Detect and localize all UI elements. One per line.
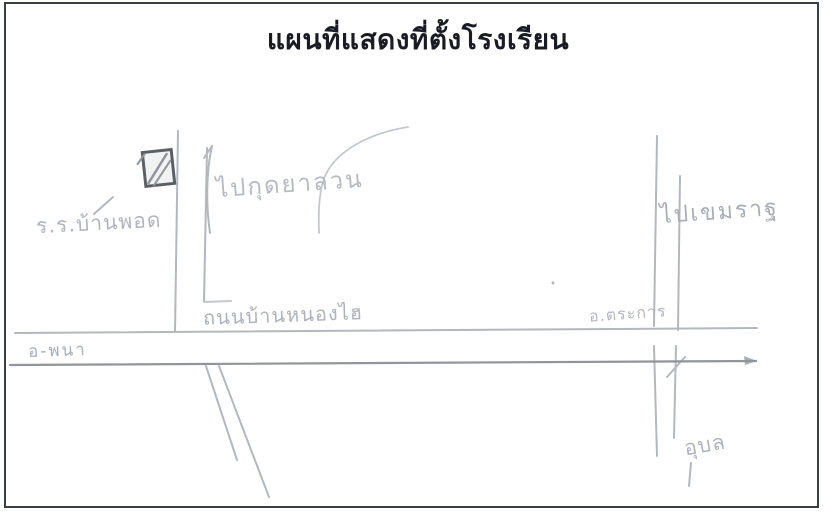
scanned-map-page: แผนที่แสดงที่ตั้งโรงเรียน [0, 0, 836, 530]
main-horizontal-road [10, 328, 757, 365]
road-end-arrowhead [744, 356, 757, 365]
road-name-label: ถนนบ้านหนองไฮ [202, 296, 363, 334]
school-name-label: ร.ร.บ้านพอด [35, 204, 162, 244]
school-marker-icon [136, 150, 174, 187]
pencil-speck [552, 282, 555, 285]
down-arrow-icon [689, 463, 691, 486]
west-town-label: อ-พนา [28, 336, 88, 365]
diagonal-branch-road [206, 366, 269, 497]
